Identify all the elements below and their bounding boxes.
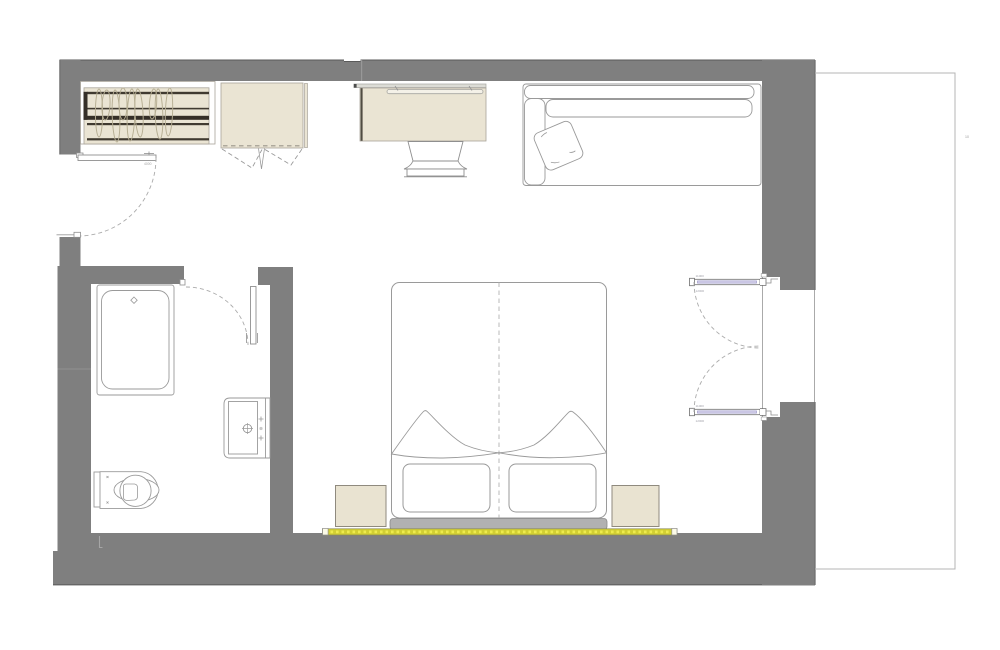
svg-text:11000: 11000 [696,274,705,278]
svg-text:10: 10 [965,135,969,139]
svg-text:12000: 12000 [696,289,705,293]
svg-text:11000: 11000 [696,404,705,408]
svg-text:12000: 12000 [696,419,705,423]
svg-text:4000: 4000 [144,162,152,166]
